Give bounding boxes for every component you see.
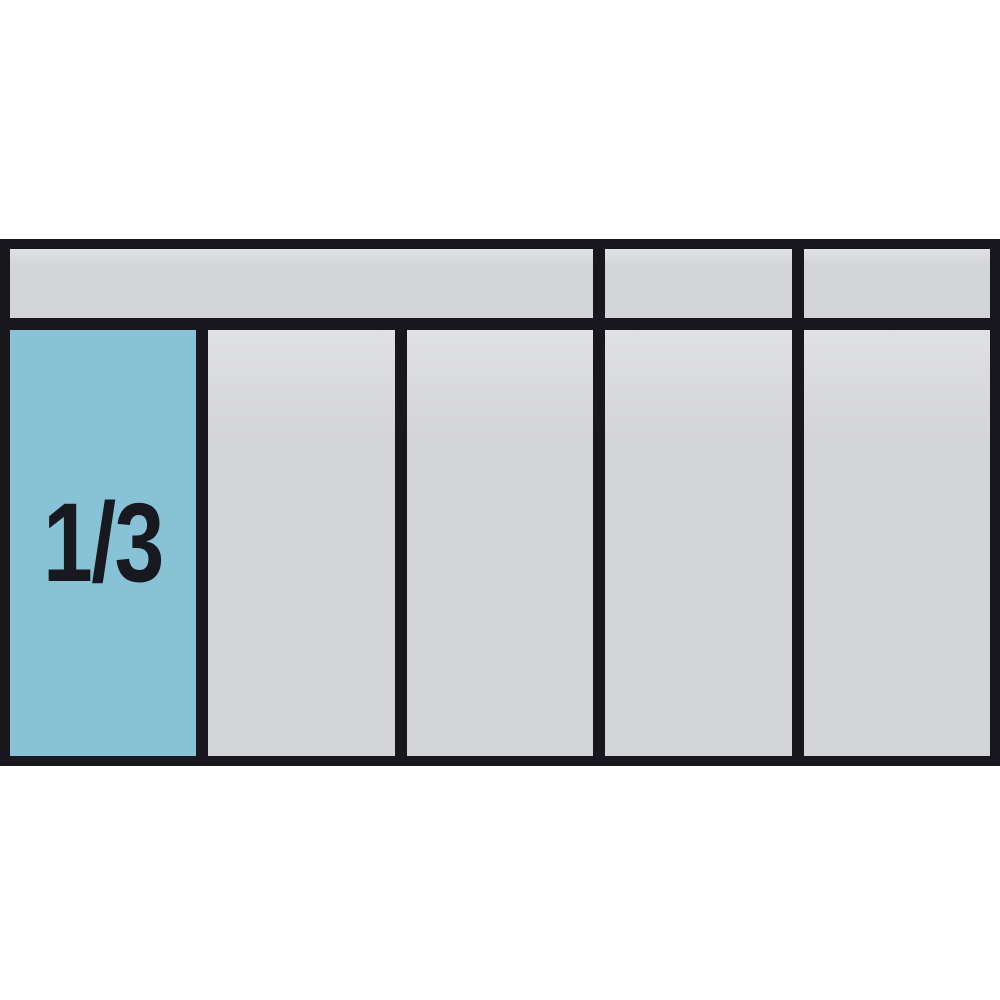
tray-slot-4 xyxy=(605,330,791,756)
tray-fraction-label: 1/3 xyxy=(43,487,163,599)
tool-tray-diagram: 1/3 xyxy=(0,239,1000,766)
tray-grid: 1/3 xyxy=(10,249,990,756)
tray-slot-5 xyxy=(804,330,990,756)
canvas: 1/3 xyxy=(0,0,1000,1000)
tray-slot-3 xyxy=(407,330,593,756)
tray-lid-compartment-wide xyxy=(10,249,593,318)
tray-slot-2 xyxy=(208,330,394,756)
tray-lid-compartment-4 xyxy=(605,249,791,318)
tray-lid-compartment-5 xyxy=(804,249,990,318)
tray-slot-highlighted: 1/3 xyxy=(10,330,196,756)
